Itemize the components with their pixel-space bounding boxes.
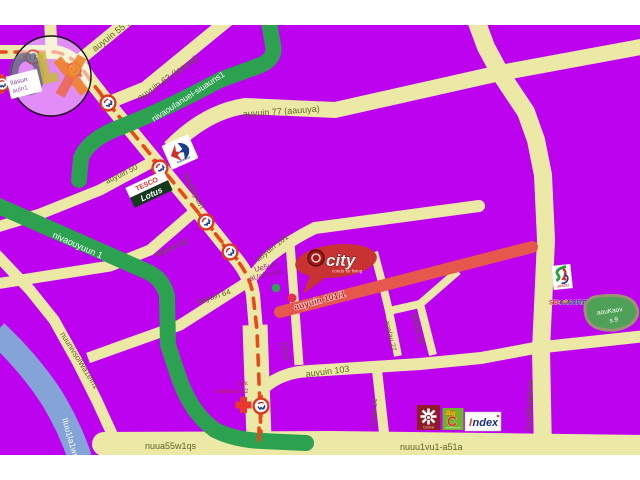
svg-text:s.9: s.9 — [609, 316, 619, 324]
svg-text:s.w.: s.w. — [237, 380, 248, 387]
svg-text:SUPERCENTER: SUPERCENTER — [445, 428, 461, 430]
svg-text:nuuu1vu1-a51a: nuuu1vu1-a51a — [400, 442, 463, 452]
svg-text:nuua5uasuns: nuua5uasuns — [523, 380, 535, 431]
svg-text:naoeu1In 2: naoeu1In 2 — [216, 388, 249, 395]
svg-text:nuua55w1qs: nuua55w1qs — [145, 441, 197, 451]
svg-text:condo for living: condo for living — [332, 269, 363, 274]
svg-text:Big: Big — [446, 411, 456, 417]
svg-text:city: city — [326, 251, 357, 270]
svg-text:Central: Central — [423, 426, 434, 430]
svg-text:ndex: ndex — [473, 417, 500, 429]
